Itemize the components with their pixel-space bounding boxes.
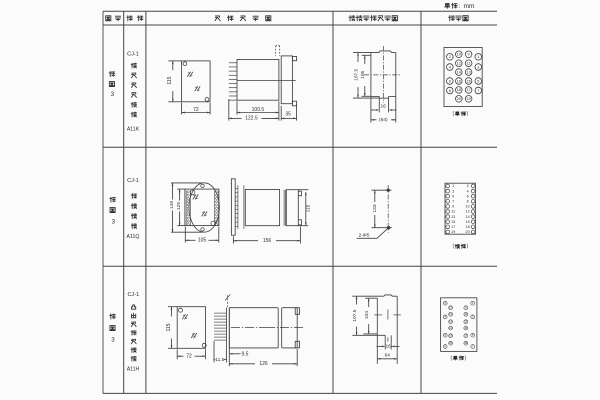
svg-text:35: 35 xyxy=(285,112,291,118)
svg-text:3: 3 xyxy=(112,218,116,225)
svg-text:107.5: 107.5 xyxy=(353,68,359,80)
svg-text:64: 64 xyxy=(385,352,391,358)
svg-text:CJ-1: CJ-1 xyxy=(127,178,139,184)
svg-text:(: ( xyxy=(450,355,452,361)
svg-text:16: 16 xyxy=(386,344,392,349)
svg-text:115: 115 xyxy=(305,204,311,212)
svg-text:18: 18 xyxy=(466,225,470,229)
svg-text:6: 6 xyxy=(467,194,469,198)
svg-text:9.5: 9.5 xyxy=(242,351,249,357)
svg-text:115: 115 xyxy=(167,76,173,84)
svg-text:7: 7 xyxy=(452,199,454,203)
svg-text:5: 5 xyxy=(452,194,454,198)
svg-text:17: 17 xyxy=(466,88,470,92)
svg-text:105: 105 xyxy=(198,238,207,244)
svg-text:126: 126 xyxy=(259,361,268,367)
svg-text:10: 10 xyxy=(457,53,461,57)
svg-text:133: 133 xyxy=(372,204,378,212)
svg-text:): ) xyxy=(464,355,466,361)
svg-text:7: 7 xyxy=(477,89,479,93)
svg-text:15: 15 xyxy=(466,79,470,83)
svg-text:9: 9 xyxy=(468,53,470,57)
svg-text:14: 14 xyxy=(466,215,470,219)
svg-text:72: 72 xyxy=(193,107,199,113)
svg-text:(: ( xyxy=(452,244,454,250)
svg-text:mm: mm xyxy=(464,3,475,10)
svg-text:20: 20 xyxy=(466,230,470,234)
svg-text:3: 3 xyxy=(111,91,115,98)
svg-text:16: 16 xyxy=(457,79,461,83)
svg-text:122.5: 122.5 xyxy=(245,116,258,122)
svg-text:125: 125 xyxy=(176,202,182,210)
svg-text:149: 149 xyxy=(169,201,175,209)
svg-text:13: 13 xyxy=(466,70,470,74)
svg-text:17: 17 xyxy=(451,225,455,229)
svg-text:(: ( xyxy=(452,111,454,117)
svg-text:19: 19 xyxy=(451,230,455,234)
svg-text:A11Q: A11Q xyxy=(127,234,140,240)
svg-text:9: 9 xyxy=(452,205,454,209)
svg-text:18: 18 xyxy=(457,88,461,92)
svg-text:19: 19 xyxy=(466,97,470,101)
svg-text:15: 15 xyxy=(451,220,455,224)
svg-text:A11K: A11K xyxy=(127,126,140,132)
svg-text:1: 1 xyxy=(477,55,479,59)
svg-text:104: 104 xyxy=(364,311,370,319)
svg-text:16: 16 xyxy=(381,103,387,109)
svg-text:3: 3 xyxy=(477,65,479,69)
svg-text:): ) xyxy=(466,111,468,117)
svg-text:CJ-1: CJ-1 xyxy=(127,292,139,298)
svg-text:105: 105 xyxy=(360,70,366,78)
svg-text:72: 72 xyxy=(186,353,192,359)
svg-text:4: 4 xyxy=(449,65,451,69)
svg-text:CJ-1: CJ-1 xyxy=(127,52,139,58)
svg-text:11: 11 xyxy=(467,62,471,66)
svg-text:): ) xyxy=(466,244,468,250)
svg-text:156: 156 xyxy=(263,238,272,244)
svg-text:3: 3 xyxy=(111,337,115,344)
svg-text:5: 5 xyxy=(477,79,479,83)
svg-text:4: 4 xyxy=(467,189,469,193)
svg-text:100.5: 100.5 xyxy=(252,107,265,113)
svg-text:A11H: A11H xyxy=(127,366,140,372)
svg-text:6: 6 xyxy=(449,79,451,83)
svg-text:13: 13 xyxy=(451,215,455,219)
svg-text:3: 3 xyxy=(452,189,454,193)
svg-text:10: 10 xyxy=(466,205,470,209)
svg-text:8: 8 xyxy=(449,89,451,93)
svg-text:11: 11 xyxy=(451,210,455,214)
svg-text:2: 2 xyxy=(467,184,469,188)
svg-text:14: 14 xyxy=(457,70,461,74)
svg-text:8: 8 xyxy=(467,199,469,203)
svg-text:11.5: 11.5 xyxy=(215,357,224,363)
svg-text:115: 115 xyxy=(166,323,172,331)
svg-text:107.5: 107.5 xyxy=(352,309,358,321)
svg-text:2-Φ5: 2-Φ5 xyxy=(359,233,370,239)
svg-text:16: 16 xyxy=(466,220,470,224)
svg-text:20: 20 xyxy=(457,97,461,101)
svg-text:(64): (64) xyxy=(379,117,388,123)
svg-text:12: 12 xyxy=(457,62,461,66)
svg-text:12: 12 xyxy=(466,210,470,214)
svg-text::: : xyxy=(459,4,461,10)
svg-text:2: 2 xyxy=(449,55,451,59)
svg-text:1: 1 xyxy=(452,184,454,188)
